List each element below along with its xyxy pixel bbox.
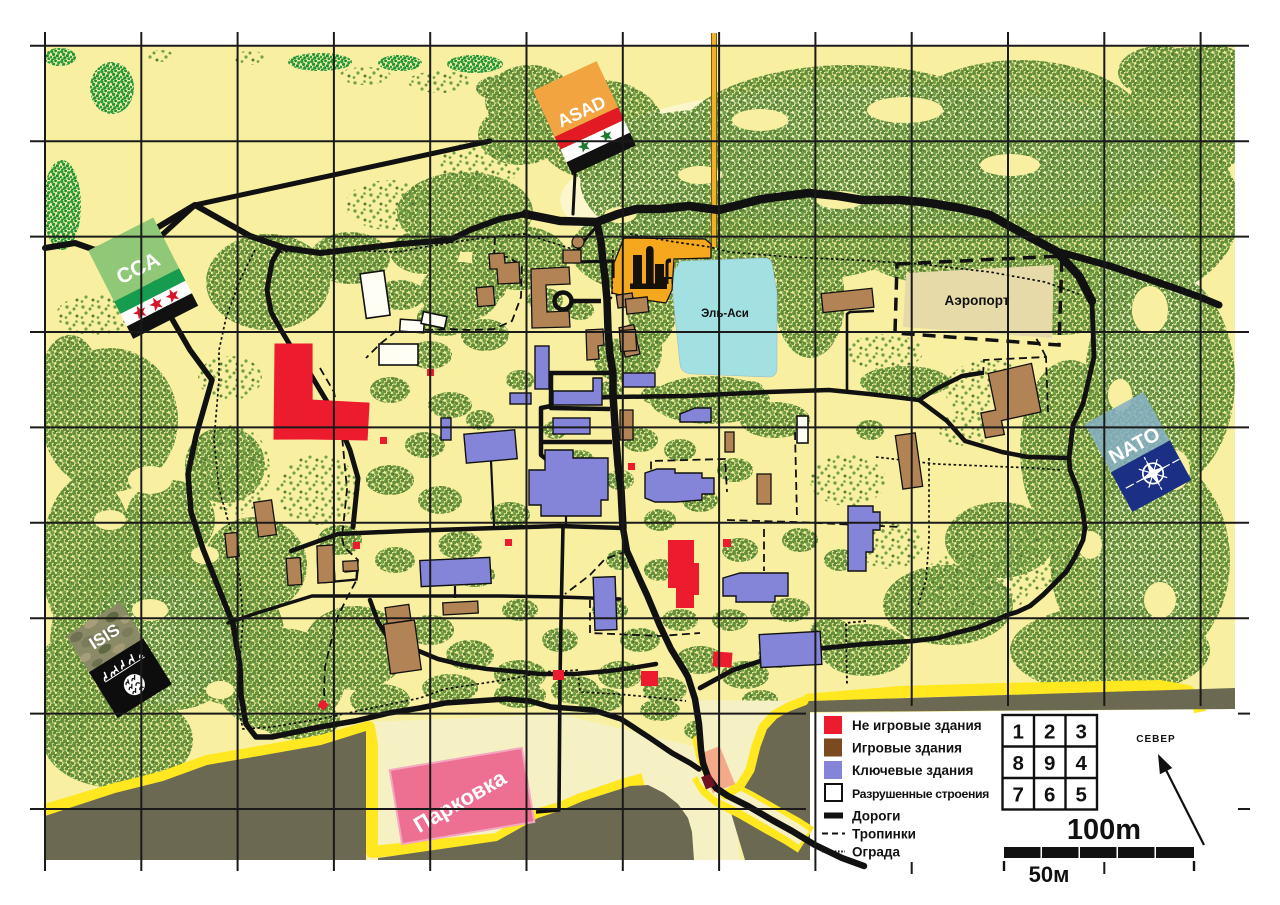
svg-text:2: 2 (1044, 721, 1055, 744)
svg-text:4: 4 (1075, 752, 1087, 775)
svg-text:1: 1 (1012, 721, 1023, 744)
svg-text:СЕВЕР: СЕВЕР (1136, 734, 1175, 745)
svg-text:6: 6 (1044, 784, 1055, 807)
svg-text:Ограда: Ограда (852, 845, 900, 860)
svg-text:8: 8 (1012, 752, 1023, 775)
svg-text:Ключевые здания: Ключевые здания (852, 763, 973, 778)
svg-text:9: 9 (1044, 752, 1055, 775)
svg-text:Дороги: Дороги (852, 809, 900, 824)
svg-text:5: 5 (1075, 784, 1086, 807)
svg-text:Не игровые здания: Не игровые здания (852, 718, 982, 733)
svg-text:100m: 100m (1067, 814, 1141, 846)
svg-text:Тропинки: Тропинки (852, 827, 916, 842)
svg-text:Аэропорт: Аэропорт (945, 293, 1010, 308)
svg-text:3: 3 (1075, 721, 1086, 744)
svg-text:Игровые здания: Игровые здания (852, 741, 962, 756)
svg-text:7: 7 (1012, 784, 1023, 807)
svg-text:Эль-Аси: Эль-Аси (701, 308, 749, 320)
svg-text:50м: 50м (1029, 862, 1070, 887)
svg-text:Разрушенные строения: Разрушенные строения (852, 787, 989, 801)
